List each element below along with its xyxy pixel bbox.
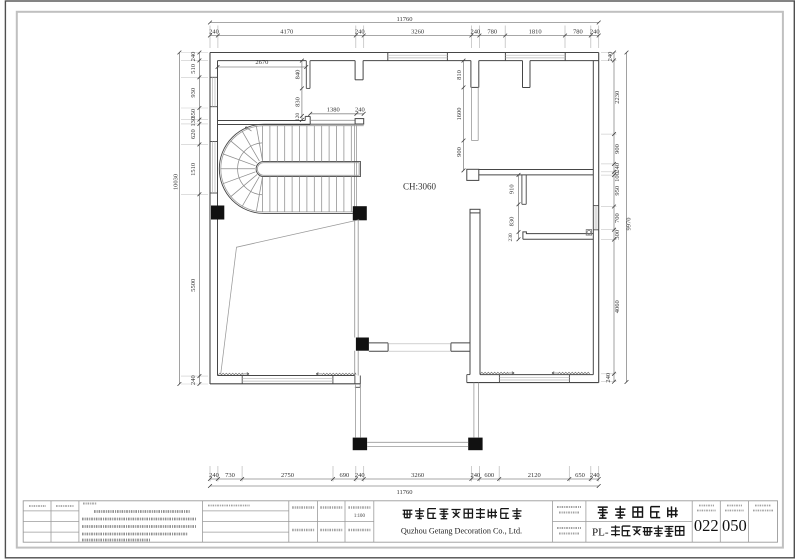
svg-text:PL-: PL- [592,527,609,539]
svg-text:3260: 3260 [411,29,424,36]
svg-text:5500: 5500 [190,279,197,292]
svg-text:830: 830 [294,97,301,107]
svg-text:1:100: 1:100 [354,514,366,519]
svg-text:240: 240 [605,373,612,383]
svg-text:830: 830 [508,217,515,227]
svg-text:240: 240 [607,52,614,62]
svg-text:910: 910 [508,184,515,194]
svg-text:900: 900 [456,147,463,157]
svg-text:130: 130 [190,117,197,127]
svg-text:900: 900 [614,144,621,154]
svg-text:240: 240 [209,472,219,479]
svg-text:930: 930 [190,88,197,98]
svg-text:240: 240 [190,375,197,385]
svg-text:240: 240 [355,106,365,113]
svg-text:4170: 4170 [280,29,293,36]
svg-text:840: 840 [294,70,301,80]
svg-text:650: 650 [575,472,585,479]
svg-text:510: 510 [190,64,197,74]
svg-text:CH:3060: CH:3060 [403,182,437,192]
svg-text:700: 700 [614,213,621,223]
svg-text:240: 240 [614,163,621,173]
svg-text:300: 300 [614,230,621,240]
svg-text:240: 240 [209,29,219,36]
svg-text:2750: 2750 [281,472,294,479]
svg-text:2670: 2670 [255,59,268,66]
svg-text:1380: 1380 [327,106,340,113]
svg-text:240: 240 [190,52,197,62]
svg-text:240: 240 [355,472,365,479]
svg-text:730: 730 [225,472,235,479]
svg-text:600: 600 [484,472,494,479]
svg-text:1510: 1510 [190,163,197,176]
svg-text:2230: 2230 [614,91,621,104]
svg-text:11760: 11760 [396,489,412,496]
svg-text:9970: 9970 [626,218,633,231]
svg-text:240: 240 [471,472,481,479]
svg-text:3260: 3260 [411,472,424,479]
svg-text:1810: 1810 [529,29,542,36]
svg-text:Quzhou Getang Decoration Co.,: Quzhou Getang Decoration Co., Ltd. [401,527,522,536]
svg-text:240: 240 [590,29,600,36]
svg-text:4060: 4060 [614,300,621,313]
svg-text:230: 230 [508,233,514,242]
svg-text:10030: 10030 [172,174,179,190]
svg-text:950: 950 [614,186,621,196]
svg-text:620: 620 [190,129,197,139]
svg-text:050: 050 [722,516,747,535]
svg-text:1600: 1600 [456,108,463,121]
svg-text:780: 780 [573,29,583,36]
svg-text:240: 240 [471,29,481,36]
svg-text:780: 780 [487,29,497,36]
svg-text:11760: 11760 [396,16,412,23]
svg-text:240: 240 [355,29,365,36]
svg-text:100: 100 [614,172,621,182]
svg-text:690: 690 [340,472,350,479]
svg-text:810: 810 [456,70,463,80]
svg-text:2120: 2120 [528,472,541,479]
svg-text:120: 120 [295,113,301,122]
svg-text:240: 240 [590,472,600,479]
svg-text:022: 022 [694,516,719,535]
